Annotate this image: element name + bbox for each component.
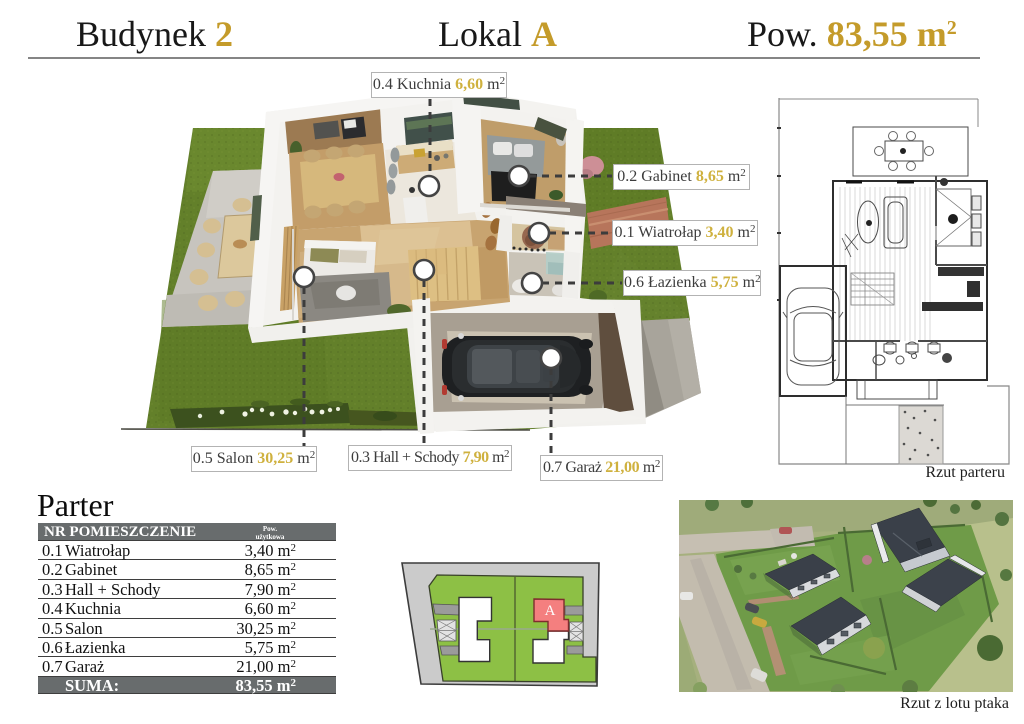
svg-text:A: A (545, 603, 556, 619)
